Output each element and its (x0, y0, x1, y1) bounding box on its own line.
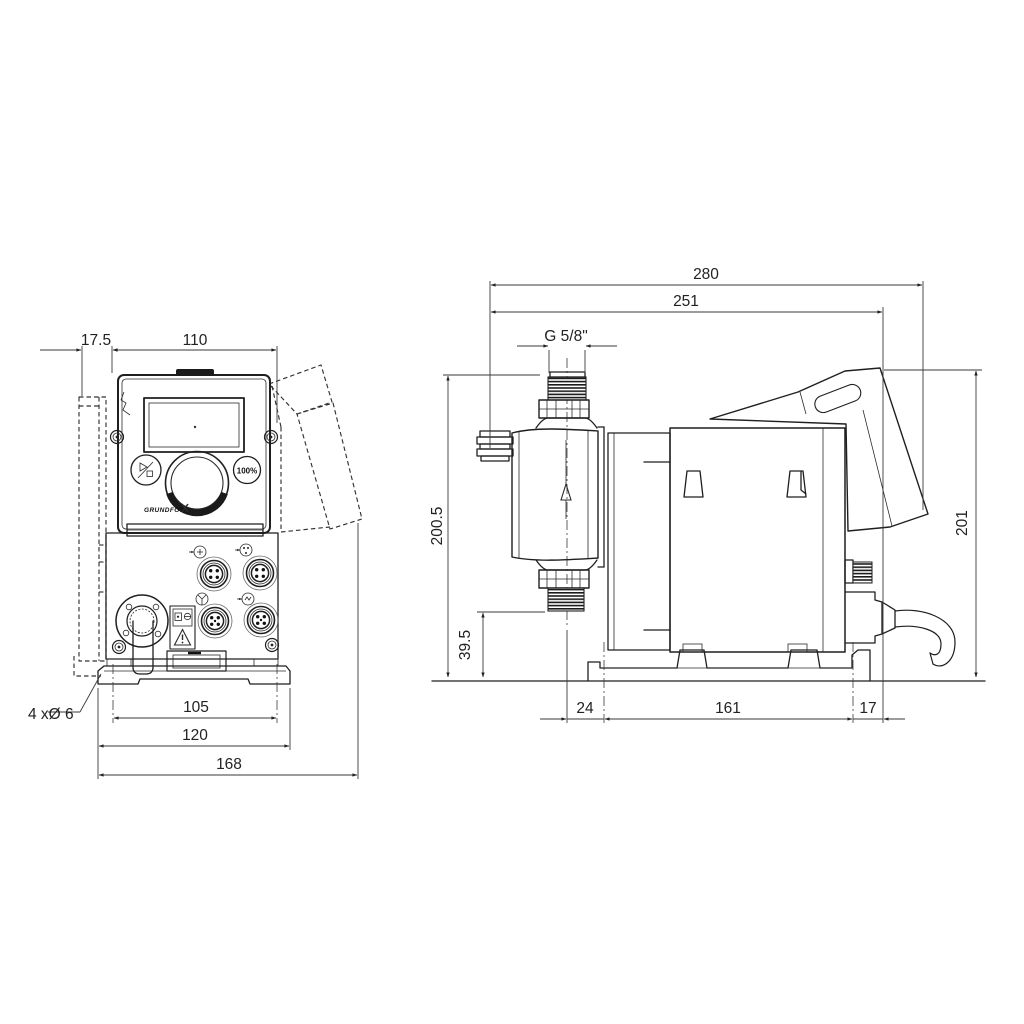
svg-text:39.5: 39.5 (457, 630, 474, 660)
suction-valve (536, 560, 597, 611)
connector-1-symbol-icon (189, 546, 206, 558)
panel-top-tab (176, 369, 214, 376)
control-panel: 100% GRUNDFOS (111, 369, 278, 533)
hundred-percent-label: 100% (237, 467, 257, 476)
dosing-head (477, 358, 604, 628)
dim-hole-spacing-side: 161 (715, 700, 741, 717)
base-plate-side (588, 650, 870, 681)
start-stop-icon (138, 462, 153, 478)
dim-total-width: 168 (99, 523, 358, 779)
clamp-hook-left (684, 471, 703, 497)
hidden-pump-body (269, 365, 362, 532)
svg-text:201: 201 (954, 510, 971, 536)
connector-3-symbol-icon (196, 593, 208, 605)
dim-length-to-cable: 251 (491, 293, 883, 723)
pump-drive-housing (608, 428, 845, 652)
dim-width-top: 110 (113, 332, 277, 423)
front-dimensions: 17.5 110 105 120 168 (28, 332, 358, 779)
dim-hole-spacing-front: 105 (113, 664, 277, 723)
dim-bottom-row: 24 161 17 (540, 630, 905, 723)
cover-handle-slot (812, 382, 863, 415)
dim-total-height: 200.5 (429, 375, 540, 677)
head-body (512, 427, 604, 567)
dim-offset-top: 17.5 (40, 332, 150, 396)
cable-gland-front (116, 595, 168, 674)
clamp-hook-right (787, 471, 806, 497)
m12-connector-4 (244, 603, 278, 637)
dim-center-to-hole: 24 (576, 700, 594, 717)
svg-text:17.5: 17.5 (81, 332, 111, 349)
front-view: 100% GRUNDFOS (28, 332, 362, 779)
screw-bottom-left (113, 641, 126, 654)
click-wheel (166, 452, 229, 515)
hundred-percent-button: 100% (234, 457, 261, 484)
label-mounting-holes: 4 xØ 6 (28, 674, 101, 723)
svg-text:251: 251 (673, 293, 699, 310)
m12-connector-1 (197, 557, 231, 591)
svg-text:280: 280 (693, 266, 719, 283)
svg-text:200.5: 200.5 (429, 507, 446, 546)
display (144, 398, 244, 452)
mains-cable (895, 610, 955, 666)
connector-4-symbol-icon (237, 593, 254, 605)
side-view: 280 251 G 5/8" 200.5 3 (429, 266, 985, 723)
base-plate-front (98, 666, 290, 684)
control-cover (710, 368, 928, 531)
svg-text:G 5/8": G 5/8" (544, 328, 587, 345)
m12-connector-2 (243, 556, 277, 590)
mounting-latch (167, 651, 226, 671)
svg-text:168: 168 (216, 756, 242, 773)
warning-label (170, 606, 195, 649)
svg-text:GRUNDFOS: GRUNDFOS (144, 507, 185, 514)
warning-triangle-icon (175, 630, 191, 646)
dim-edge-offset: 17 (859, 700, 876, 717)
vent-valve (477, 431, 513, 461)
display-cursor-dot (194, 426, 196, 428)
svg-text:110: 110 (183, 332, 208, 349)
technical-drawing: 100% GRUNDFOS (0, 0, 1024, 1024)
screw-bottom-right (266, 639, 279, 652)
start-stop-button (131, 455, 161, 485)
dim-valve-height: 39.5 (457, 612, 545, 677)
svg-text:120: 120 (182, 727, 208, 744)
connector-2-symbol-icon (235, 544, 252, 556)
svg-text:105: 105 (183, 699, 209, 716)
technical-drawing-page: 100% GRUNDFOS (0, 0, 1024, 1024)
wall-mounting-plate (74, 397, 106, 676)
flow-arrow (561, 440, 571, 519)
m12-connector-3 (198, 604, 232, 638)
discharge-valve (536, 372, 597, 428)
svg-text:4 xØ 6: 4 xØ 6 (28, 706, 74, 723)
